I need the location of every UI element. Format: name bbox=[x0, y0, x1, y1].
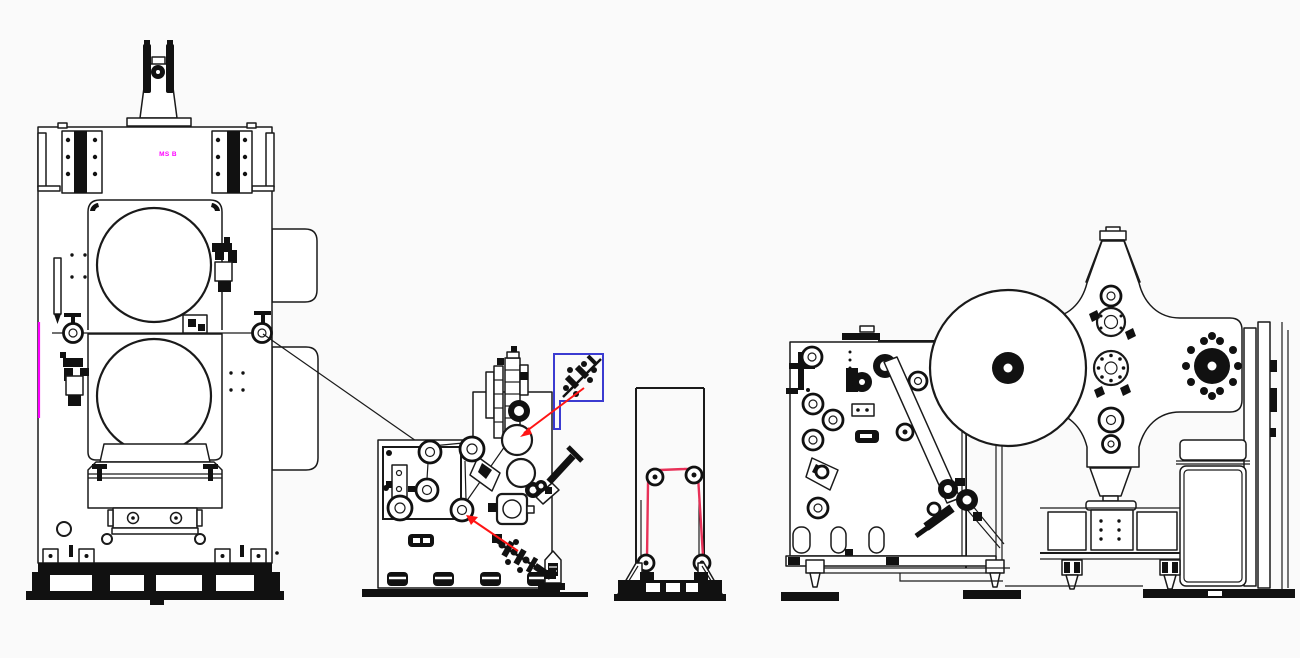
roller bbox=[416, 479, 438, 501]
side-box-upper bbox=[272, 229, 317, 302]
top-roll bbox=[97, 208, 211, 322]
roller-black bbox=[508, 400, 530, 422]
drawing-canvas: MS B bbox=[0, 0, 1300, 658]
guide-roller-left bbox=[64, 324, 83, 343]
side-box-lower bbox=[272, 347, 318, 470]
panel-roller bbox=[808, 498, 828, 518]
bolt-plate-left bbox=[62, 131, 102, 193]
stand-roller bbox=[686, 467, 702, 483]
stand-roller bbox=[647, 469, 663, 485]
panel-roller bbox=[803, 430, 823, 450]
machinery-line-drawing: MS B bbox=[0, 0, 1300, 658]
roll-hub bbox=[992, 352, 1024, 384]
bolt-plate-right bbox=[212, 131, 252, 193]
bottom-roll bbox=[97, 339, 211, 453]
roller bbox=[419, 441, 441, 463]
panel-roller bbox=[909, 372, 927, 390]
machine-label: MS B bbox=[159, 151, 177, 158]
panel-roller bbox=[823, 410, 843, 430]
panel-roller bbox=[802, 347, 822, 367]
panel-roller bbox=[803, 394, 823, 414]
slot-pad bbox=[408, 534, 434, 547]
level-gauge bbox=[54, 258, 61, 324]
press-table bbox=[88, 444, 222, 534]
guide-roller-right bbox=[253, 324, 272, 343]
roller bbox=[388, 496, 412, 520]
